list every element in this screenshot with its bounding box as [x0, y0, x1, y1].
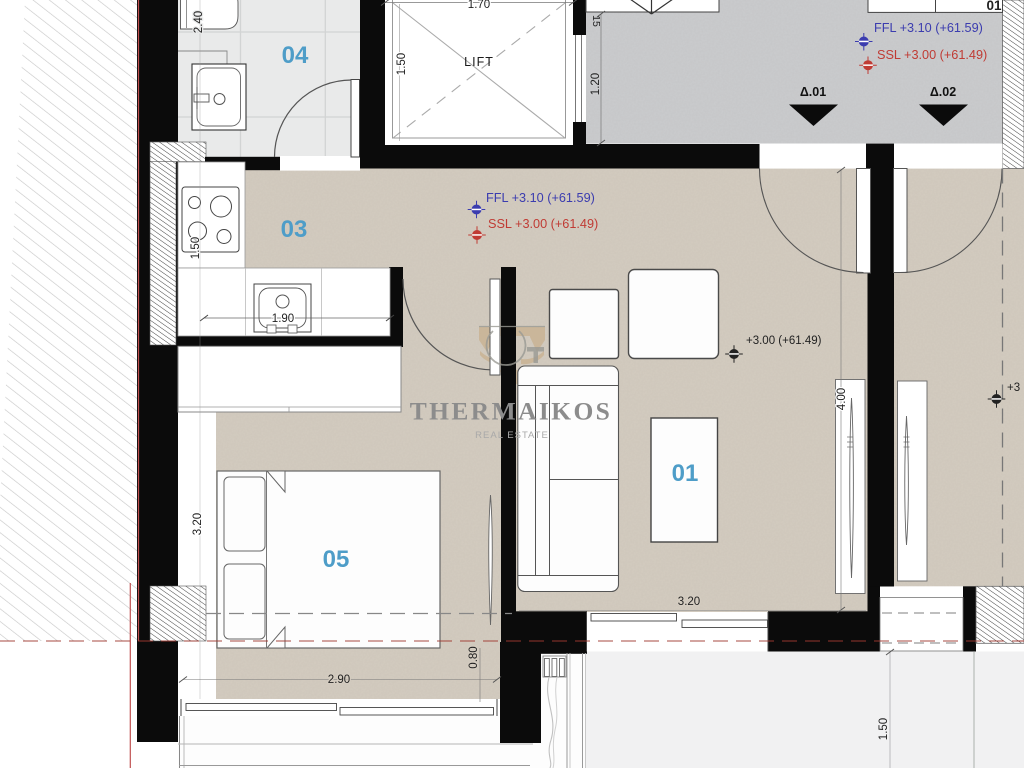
svg-text:+3.00 (+61.49): +3.00 (+61.49)	[746, 335, 822, 347]
svg-text:03: 03	[281, 216, 308, 243]
svg-text:1.50: 1.50	[396, 53, 408, 75]
svg-text:01: 01	[986, 0, 1002, 13]
svg-text:1.90: 1.90	[272, 313, 294, 325]
svg-text:05: 05	[323, 546, 350, 573]
svg-text:FFL +3.10 (+61.59): FFL +3.10 (+61.59)	[874, 21, 983, 35]
svg-text:Δ.02: Δ.02	[930, 85, 956, 99]
svg-text:+3: +3	[1007, 382, 1020, 394]
svg-text:3.20: 3.20	[678, 596, 700, 608]
svg-text:04: 04	[282, 42, 309, 69]
svg-text:SSL +3.00 (+61.49): SSL +3.00 (+61.49)	[877, 48, 987, 62]
svg-text:1.70: 1.70	[468, 0, 490, 11]
svg-text:3.20: 3.20	[192, 513, 204, 535]
svg-text:FFL +3.10 (+61.59): FFL +3.10 (+61.59)	[486, 191, 595, 205]
svg-text:REAL ESTATE: REAL ESTATE	[475, 430, 549, 441]
svg-text:15: 15	[590, 15, 602, 27]
svg-text:1.20: 1.20	[590, 73, 602, 95]
svg-text:Δ.01: Δ.01	[800, 85, 826, 99]
svg-text:2.40: 2.40	[193, 11, 205, 33]
svg-text:1.50: 1.50	[878, 718, 890, 740]
svg-text:2.90: 2.90	[328, 674, 350, 686]
svg-text:4.00: 4.00	[836, 388, 848, 410]
svg-text:THERMAIKOS: THERMAIKOS	[410, 397, 613, 426]
svg-text:LIFT: LIFT	[464, 55, 494, 69]
svg-text:01: 01	[672, 460, 699, 487]
svg-text:SSL +3.00 (+61.49): SSL +3.00 (+61.49)	[488, 217, 598, 231]
svg-text:0.80: 0.80	[468, 646, 480, 668]
